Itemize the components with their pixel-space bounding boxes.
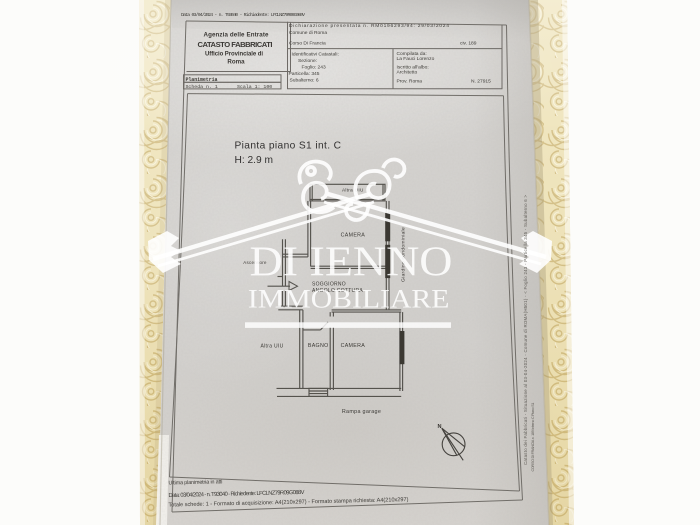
svg-text:Scala 1: 100: Scala 1: 100	[237, 84, 272, 90]
svg-text:N: N	[438, 424, 442, 430]
svg-text:civ. 189: civ. 189	[460, 41, 477, 47]
svg-text:Foglio: 243: Foglio: 243	[302, 65, 326, 71]
svg-text:H: 2.9 m: H: 2.9 m	[235, 155, 274, 166]
svg-text:Altra UIU: Altra UIU	[261, 344, 284, 350]
svg-text:Agenzia delle Entrate: Agenzia delle Entrate	[204, 32, 270, 39]
svg-text:Dichiarazione presentata n. RM: Dichiarazione presentata n. RM0196293/94…	[289, 23, 449, 29]
svg-text:IMMOBILIARE: IMMOBILIARE	[248, 284, 450, 314]
svg-text:N. 27915: N. 27915	[471, 79, 491, 85]
svg-text:Ultima planimetria in atti: Ultima planimetria in atti	[168, 479, 222, 486]
svg-text:Altra UIU: Altra UIU	[342, 188, 364, 193]
svg-text:Particella: 345: Particella: 345	[289, 71, 320, 77]
svg-text:Catasto dei Fabbricati - Situa: Catasto dei Fabbricati - Situazione al 0…	[523, 195, 528, 465]
svg-text:DI IENNO: DI IENNO	[250, 240, 453, 286]
svg-text:Corso Di Francia: Corso Di Francia	[289, 41, 326, 47]
svg-text:La Fauci Lorenzo: La Fauci Lorenzo	[397, 56, 435, 62]
svg-text:CAMERA: CAMERA	[341, 343, 366, 349]
svg-text:Prov. Roma: Prov. Roma	[397, 79, 423, 85]
svg-text:CORSO DI FRANCIA n. 189 Inter: CORSO DI FRANCIA n. 189 Interno C Piano …	[531, 403, 535, 472]
svg-text:Sezione:: Sezione:	[298, 58, 317, 64]
svg-text:Comune di Roma: Comune di Roma	[289, 30, 327, 36]
svg-text:Identificativi Catastali:: Identificativi Catastali:	[292, 52, 339, 58]
svg-text:Architetto: Architetto	[397, 70, 418, 76]
svg-text:Planimetria: Planimetria	[186, 77, 218, 83]
svg-text:Ufficio Provinciale di: Ufficio Provinciale di	[205, 52, 263, 58]
svg-text:Subalterno: 6: Subalterno: 6	[290, 78, 319, 84]
svg-text:Rampa garage: Rampa garage	[342, 409, 381, 415]
svg-text:Roma: Roma	[227, 59, 245, 66]
svg-text:Data 03/04/2024 - n. T93040 -: Data 03/04/2024 - n. T93040 - Richiedent…	[181, 12, 305, 18]
svg-text:Pianta piano S1 int. C: Pianta piano S1 int. C	[235, 141, 342, 152]
svg-text:BAGNO: BAGNO	[308, 343, 329, 349]
svg-text:Scheda n. 1: Scheda n. 1	[186, 84, 218, 90]
svg-text:CATASTO FABBRICATI: CATASTO FABBRICATI	[198, 40, 273, 49]
svg-text:CAMERA: CAMERA	[341, 232, 366, 238]
